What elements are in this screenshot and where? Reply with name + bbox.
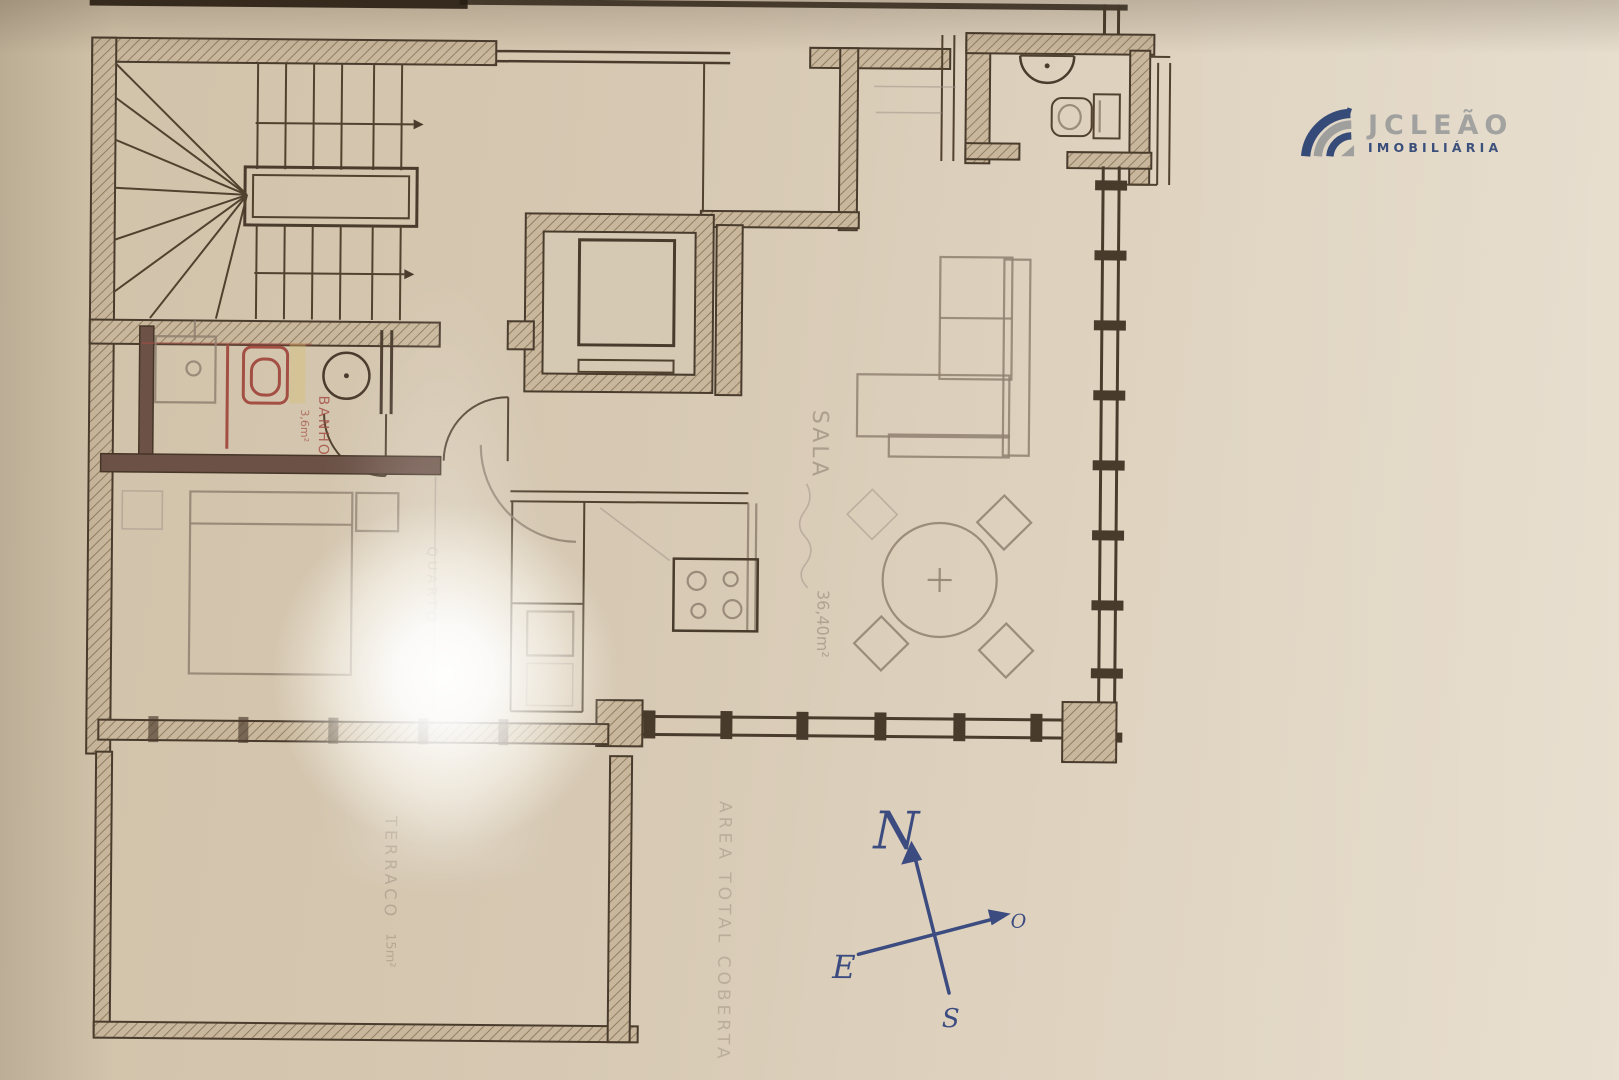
wc-sink-fixture (1020, 56, 1074, 83)
label-terrace: TERRACO (381, 815, 401, 920)
kitchen-sink-fixture (527, 611, 573, 655)
label-living-area: 36,40m² (813, 590, 833, 658)
terrace: TERRACO 15m² (94, 752, 640, 1043)
staircase (90, 62, 442, 347)
toilet-fixture (243, 347, 287, 403)
brand-logo: JCLEÃO IMOBILIÁRIA (1300, 106, 1513, 160)
compass-e: E (831, 948, 856, 986)
north-arrow (912, 851, 950, 993)
label-bathroom-area: 3,6m² (298, 409, 311, 442)
corner-pillar (1062, 702, 1117, 762)
stair-direction-arrows (254, 118, 423, 279)
floor-plan-drawing: BANHO 3,6m² QUARTO (0, 0, 1619, 1080)
right-window-wall (1090, 166, 1127, 748)
wc (941, 33, 1170, 185)
label-terrace-area: 15m² (382, 933, 397, 968)
chair (977, 495, 1031, 549)
compass-rose: N E O S (831, 801, 1028, 1035)
kitchen-door-arc (480, 445, 577, 542)
elevator (507, 213, 743, 395)
chair (979, 623, 1033, 677)
compass-o: O (1011, 911, 1027, 933)
bottom-window-wall (596, 698, 1117, 763)
bed (121, 491, 399, 675)
stove-fixture (673, 559, 758, 632)
bedroom: QUARTO (98, 394, 611, 746)
kitchen-counter (511, 501, 585, 712)
living-room: SALA 36,40m² (798, 86, 1038, 678)
label-living: SALA (807, 410, 833, 479)
label-bathroom: BANHO (315, 396, 332, 457)
compass-s: S (942, 1004, 960, 1034)
illegible-writing (799, 484, 811, 588)
dining-table (846, 489, 1035, 678)
brand-name: JCLEÃO (1368, 112, 1513, 139)
floor-plan-photo: BANHO 3,6m² QUARTO (0, 0, 1619, 1080)
wc-toilet-fixture (1052, 94, 1120, 139)
kitchen (479, 445, 759, 713)
nightstand (122, 491, 162, 529)
brand-logo-icon (1300, 106, 1356, 160)
brand-subtitle: IMOBILIÁRIA (1368, 142, 1513, 155)
stair-winders (114, 64, 248, 319)
chair (854, 616, 908, 670)
label-total-area: AREA TOTAL COBERTA (712, 801, 734, 1063)
compass-n: N (871, 801, 921, 861)
nightstand (356, 493, 398, 531)
chair (847, 489, 897, 539)
basin-fixture (323, 353, 369, 399)
label-bedroom: QUARTO (423, 546, 439, 625)
sofa-set (857, 256, 1031, 457)
bedroom-door (444, 397, 509, 462)
